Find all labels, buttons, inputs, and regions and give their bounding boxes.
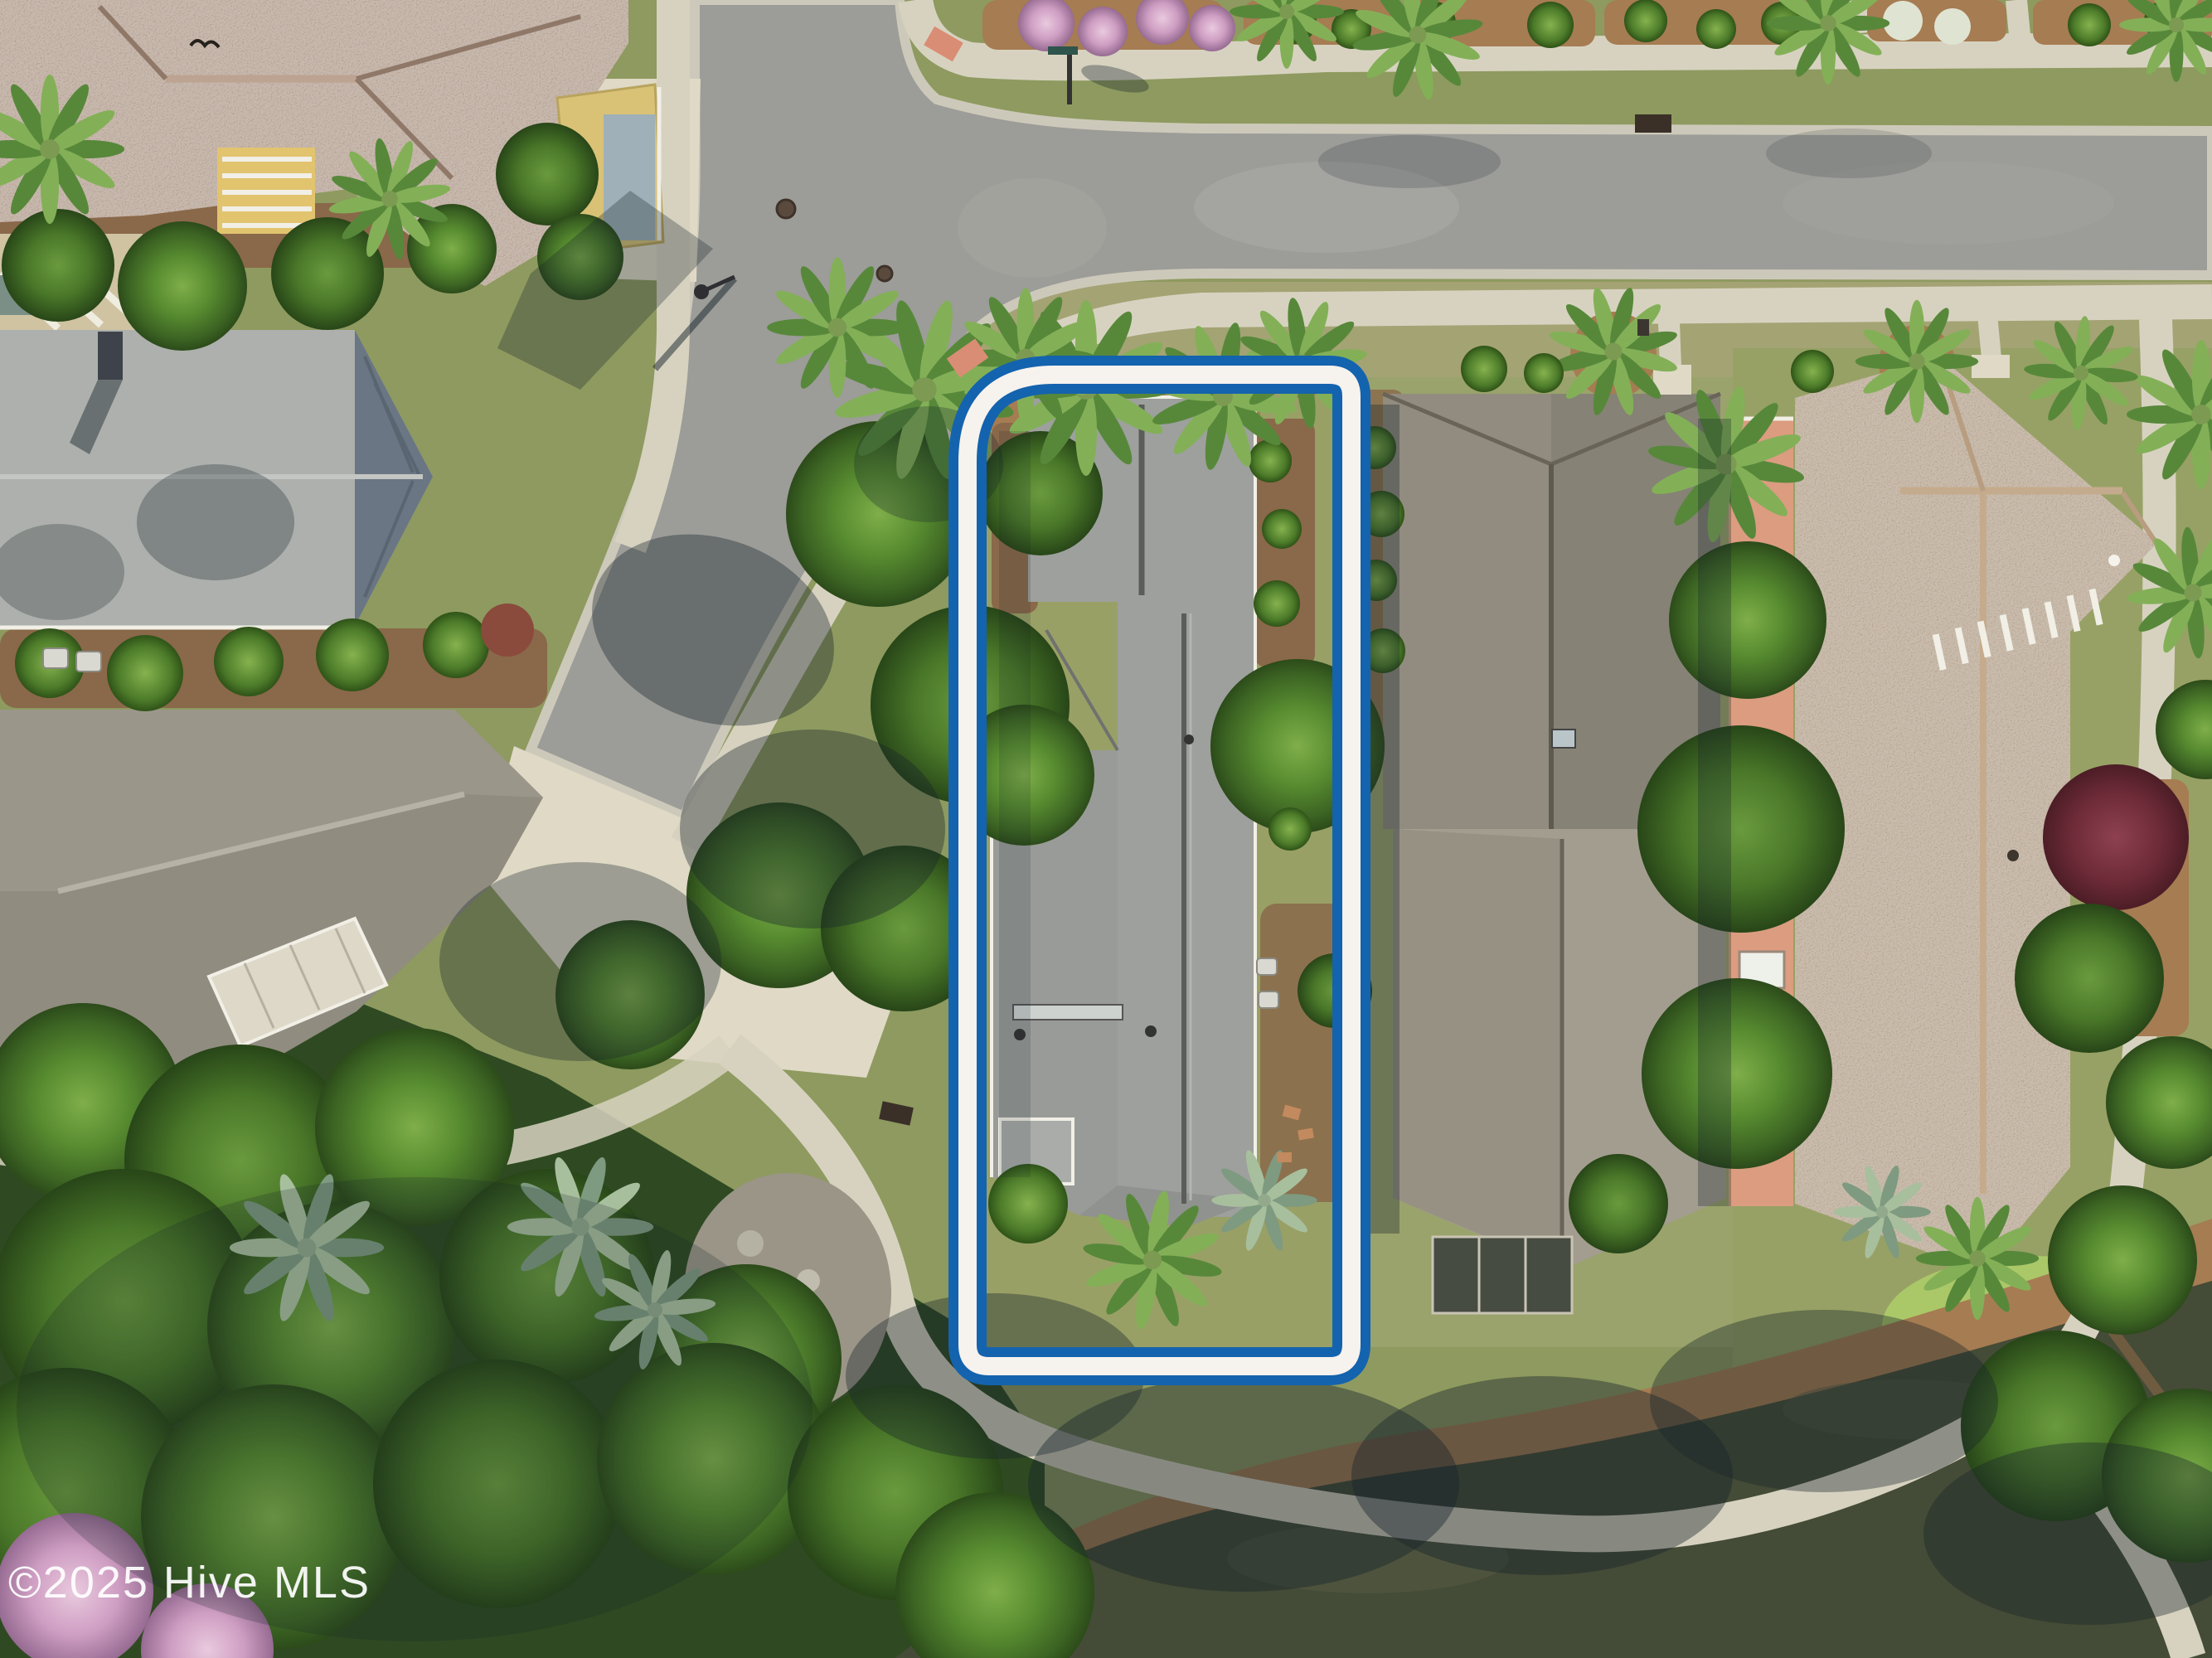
street-lamp bbox=[694, 284, 709, 299]
palm-shadow bbox=[1766, 128, 1932, 178]
shrub bbox=[214, 627, 284, 696]
white-flowers bbox=[1883, 1, 1923, 41]
screened-lanai bbox=[1433, 1237, 1572, 1313]
red-maple-tree bbox=[2043, 764, 2189, 910]
skylight bbox=[1552, 730, 1575, 748]
shrub bbox=[2068, 3, 2111, 46]
tree-canopy bbox=[1569, 1154, 1668, 1253]
tree-canopy bbox=[1637, 725, 1845, 933]
shrub bbox=[1524, 353, 1564, 393]
shrub bbox=[271, 217, 384, 330]
wall-shadow bbox=[1698, 419, 1731, 1206]
shrub bbox=[2, 209, 114, 322]
house-left-middle bbox=[0, 330, 433, 628]
shrub bbox=[1791, 350, 1834, 393]
mailbox bbox=[1637, 319, 1649, 336]
shrub bbox=[1262, 509, 1302, 549]
shrub bbox=[118, 221, 247, 351]
storm-drain bbox=[1635, 114, 1671, 133]
pink-flowers bbox=[1189, 5, 1235, 51]
fence-shadow bbox=[999, 431, 1031, 1177]
roof-vent bbox=[1184, 734, 1194, 744]
roof-vent bbox=[1145, 1025, 1157, 1037]
roof-vent bbox=[2007, 850, 2019, 861]
shrub bbox=[1249, 439, 1292, 482]
shrub bbox=[316, 618, 389, 691]
tree-canopy bbox=[1669, 541, 1826, 699]
chimney bbox=[98, 332, 123, 380]
roof-shade-face bbox=[1393, 829, 1562, 1268]
shrub bbox=[1527, 2, 1574, 48]
shrub bbox=[1624, 0, 1667, 42]
canopy-shadow bbox=[1650, 1310, 1998, 1492]
tree-shadow bbox=[439, 862, 721, 1061]
road-light-patch bbox=[958, 178, 1107, 278]
tree-shadow-on-roof bbox=[137, 464, 294, 580]
tree-canopy bbox=[1642, 978, 1832, 1169]
shrub bbox=[1696, 9, 1736, 49]
shrub bbox=[1254, 580, 1300, 627]
aerial-photo: ©2025 Hive MLS bbox=[0, 0, 2212, 1658]
palm-shadow bbox=[1318, 135, 1501, 188]
tree-canopy bbox=[2048, 1185, 2197, 1335]
shrub bbox=[107, 635, 183, 711]
manhole-cover bbox=[877, 266, 892, 281]
shrub bbox=[1461, 346, 1507, 392]
street-sign-blade bbox=[1048, 46, 1078, 55]
roof-vent bbox=[2108, 555, 2120, 566]
aerial-scene bbox=[0, 0, 2212, 1658]
pink-flowers bbox=[1078, 7, 1128, 56]
street-sign-post bbox=[1067, 51, 1072, 104]
tree-canopy bbox=[496, 123, 599, 225]
manhole-cover bbox=[777, 200, 795, 218]
watermark: ©2025 Hive MLS bbox=[8, 1557, 371, 1608]
red-shrub bbox=[481, 604, 534, 657]
tree-shadow bbox=[680, 730, 945, 928]
front-stoop bbox=[1972, 355, 2010, 378]
shrub bbox=[1269, 807, 1312, 851]
garden-path bbox=[2016, 0, 2020, 35]
white-flowers bbox=[1934, 8, 1971, 45]
shrub bbox=[423, 612, 489, 678]
tree-canopy bbox=[2015, 904, 2164, 1053]
front-walkway bbox=[1986, 297, 1991, 358]
